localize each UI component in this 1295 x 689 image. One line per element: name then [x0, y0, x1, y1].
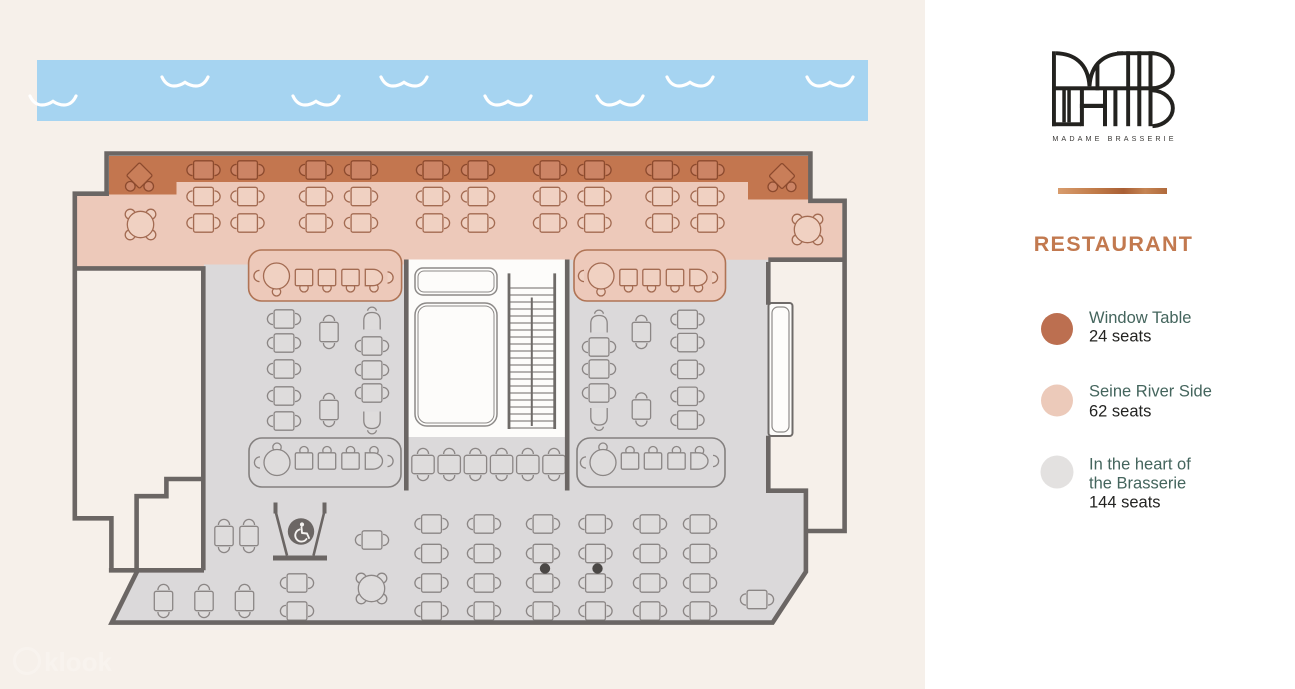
svg-text:klook: klook: [44, 647, 112, 677]
svg-text:62 seats: 62 seats: [1089, 403, 1151, 421]
svg-text:24 seats: 24 seats: [1089, 328, 1151, 346]
svg-text:RESTAURANT: RESTAURANT: [1034, 232, 1194, 256]
svg-text:Window Table: Window Table: [1089, 309, 1191, 327]
svg-text:the Brasserie: the Brasserie: [1089, 475, 1186, 493]
svg-text:Seine River Side: Seine River Side: [1089, 383, 1212, 401]
svg-text:MADAME BRASSERIE: MADAME BRASSERIE: [1052, 134, 1176, 143]
svg-text:144 seats: 144 seats: [1089, 494, 1161, 512]
svg-text:In the heart of: In the heart of: [1089, 456, 1191, 474]
